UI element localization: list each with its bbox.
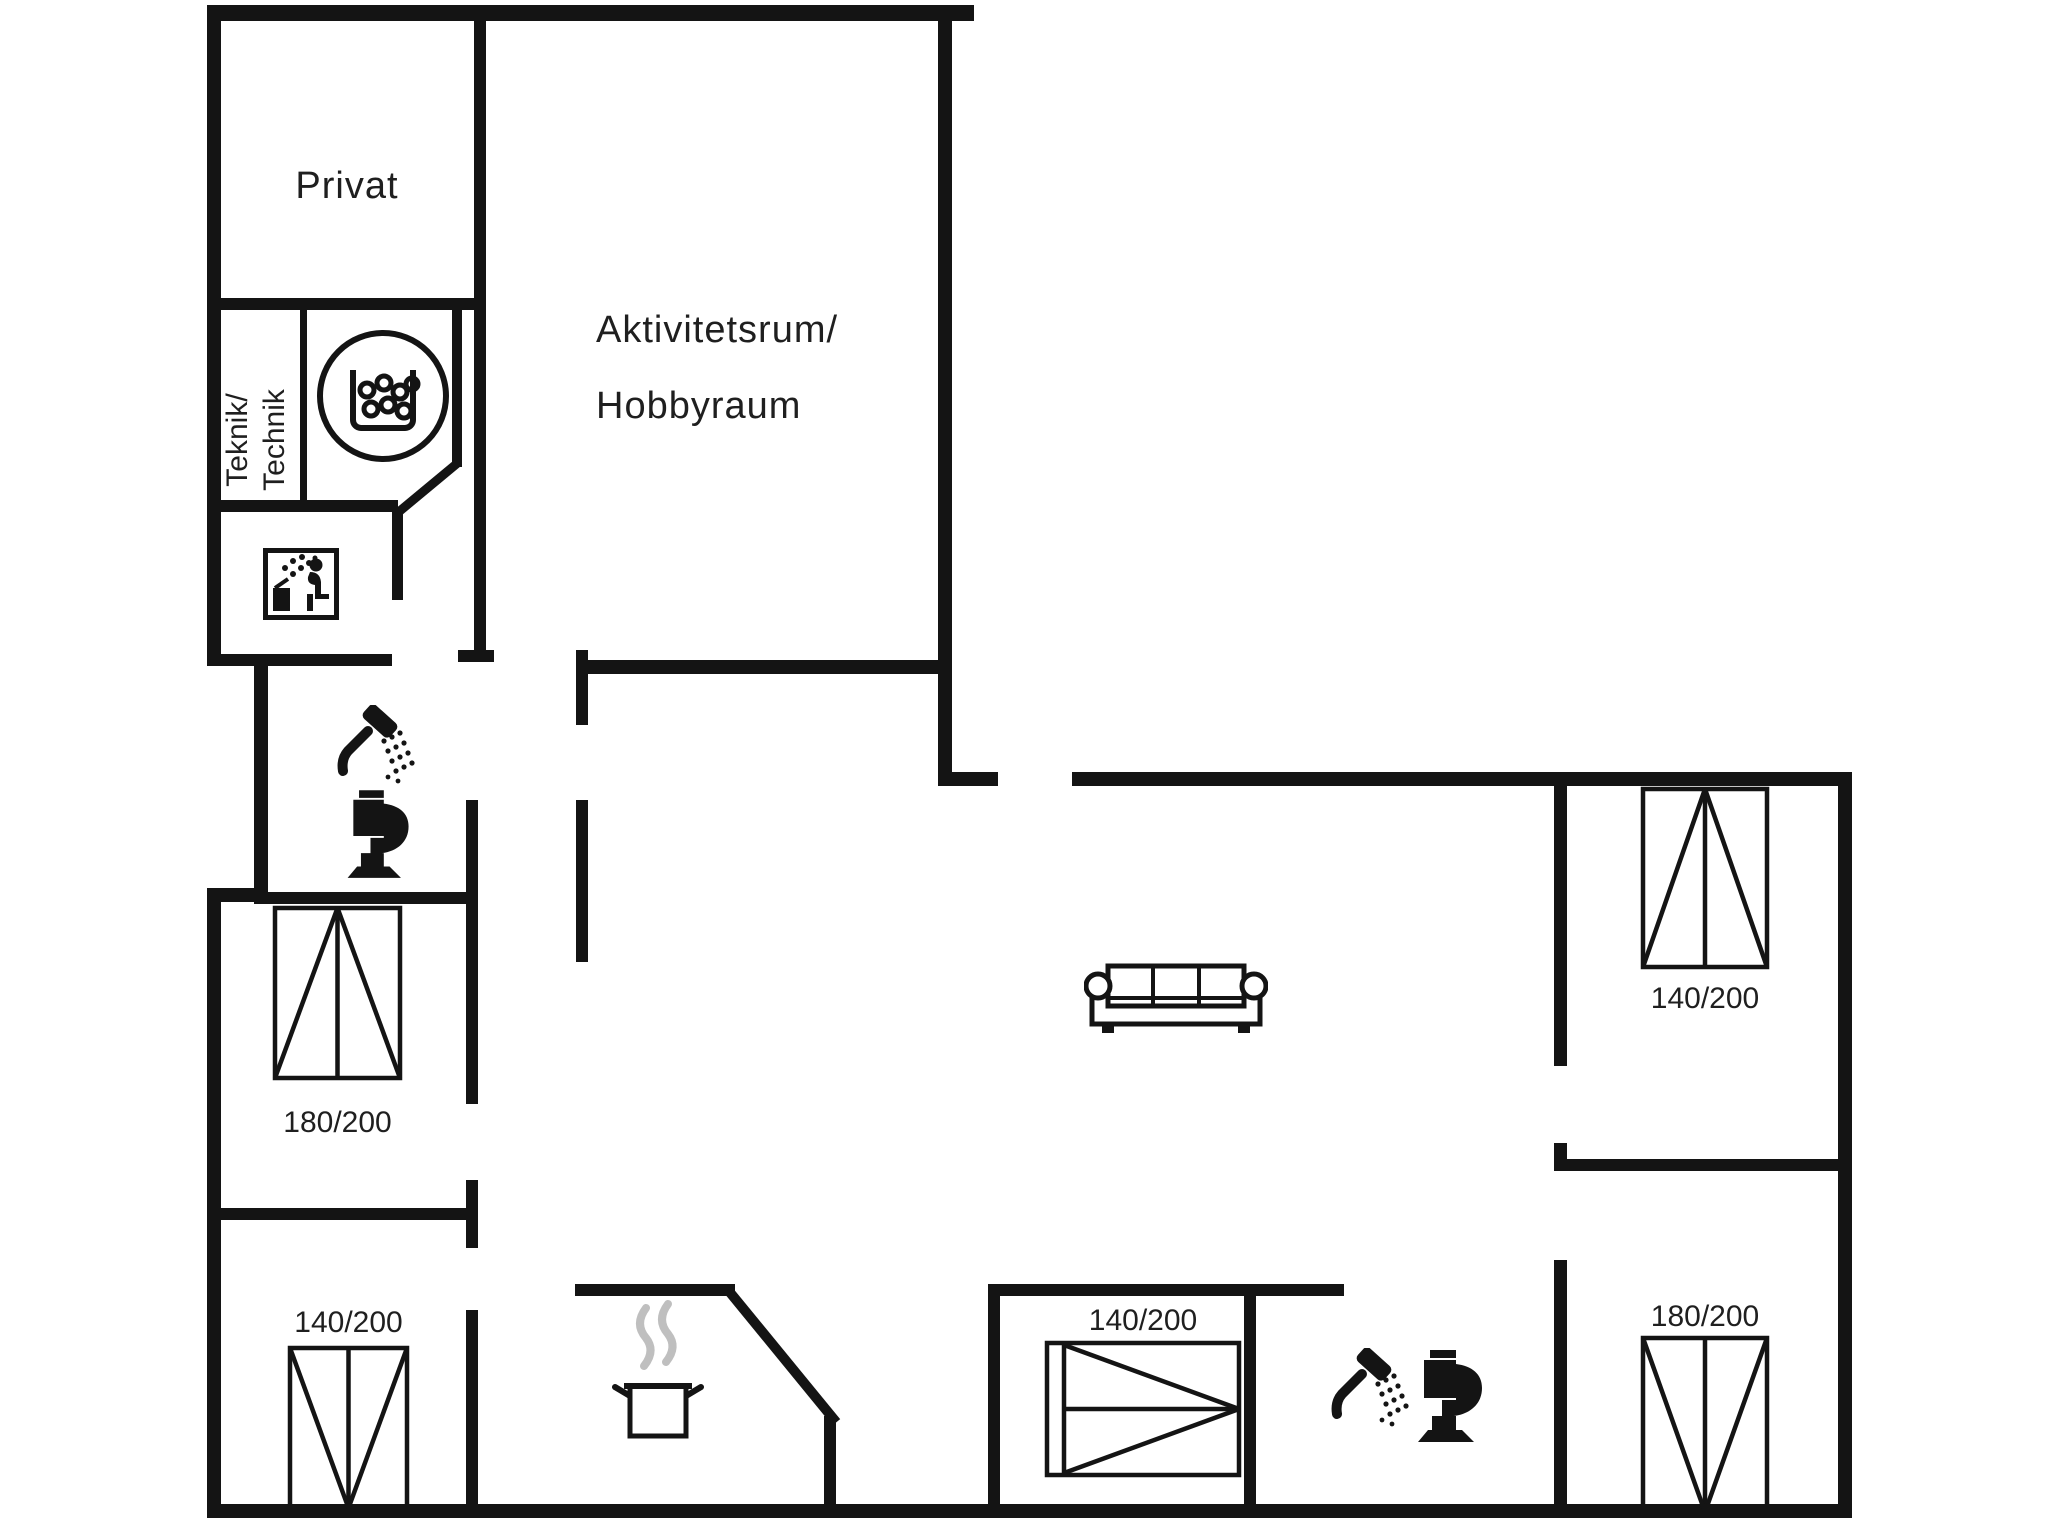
bed-size-label: 180/200 — [1640, 1300, 1770, 1334]
bed-size-label: 140/200 — [1044, 1304, 1242, 1338]
bed-icon — [272, 905, 403, 1081]
wall-kitchen-chamfer — [724, 1287, 840, 1426]
cooking-pot-icon — [610, 1298, 706, 1444]
shower-icon — [1322, 1348, 1412, 1438]
bed-icon — [287, 1345, 410, 1511]
wall-left-lower — [207, 888, 221, 1518]
wall-wash-chamfer — [395, 460, 460, 516]
wall-spine-bed2 — [466, 1310, 478, 1518]
bed-size-label: 180/200 — [272, 1106, 403, 1140]
bed-icon — [1640, 1335, 1770, 1515]
bed-icon — [1044, 1340, 1242, 1478]
wall-privat-bottom — [207, 298, 486, 310]
wall-bath2-left — [1244, 1284, 1256, 1518]
wall-sauna-bottom — [207, 654, 392, 666]
wall-rightwing-top — [1072, 772, 1852, 786]
wall-rightbed-1 — [1554, 786, 1567, 1066]
bed-icon — [1640, 786, 1770, 970]
wall-hall-jamb — [576, 650, 588, 725]
wall-wash-right — [452, 306, 462, 467]
wall-top — [207, 5, 974, 21]
wall-bedroom-divider — [214, 1208, 466, 1220]
wall-bottom — [207, 1504, 1852, 1518]
toilet-icon — [1410, 1350, 1494, 1446]
wall-kitchen-right — [824, 1416, 836, 1518]
wall-technik-bottom — [207, 500, 398, 512]
bed-size-label: 140/200 — [287, 1306, 410, 1340]
room-label-activity-line2: Hobbyraum — [596, 368, 838, 444]
wall-sauna-jamb — [392, 508, 403, 600]
wall-rightbed-3 — [1554, 1260, 1567, 1518]
wall-rightbed-divider — [1567, 1159, 1852, 1171]
wall-right-outer — [1838, 772, 1852, 1518]
wall-left-upper — [207, 5, 221, 666]
room-label-activity: Aktivitetsrum/ Hobbyraum — [596, 292, 838, 444]
room-label-activity-line1: Aktivitetsrum/ — [596, 292, 838, 368]
bed-size-label: 140/200 — [1640, 982, 1770, 1016]
room-label-technik-line2: Technik — [256, 389, 293, 491]
sauna-icon — [263, 548, 339, 620]
wall-privat-activity-divider — [474, 5, 486, 660]
room-label-technik: Teknik/ Technik — [219, 389, 293, 491]
floor-plan: Privat Aktivitetsrum/ Hobbyraum Teknik/ … — [0, 0, 2048, 1536]
washing-machine-icon — [313, 326, 453, 466]
wall-activity-right — [938, 5, 952, 786]
wall-spine-jamb — [466, 1180, 478, 1248]
wall-bath-bottom — [254, 892, 478, 904]
wall-technik-strip — [300, 310, 307, 506]
wall-activity-bottom — [586, 660, 938, 674]
wall-spine-mid — [466, 800, 478, 904]
wall-midblock-top — [988, 1284, 1344, 1296]
wall-notch-right — [254, 654, 268, 900]
wall-rightbed-2 — [1554, 1143, 1567, 1171]
wall-midblock-left — [988, 1284, 1000, 1518]
wall-kitchen-top — [575, 1284, 735, 1296]
wall-activity-right-foot — [938, 772, 998, 786]
shower-icon — [328, 705, 418, 795]
toilet-icon — [340, 790, 420, 882]
room-label-privat: Privat — [247, 165, 447, 208]
room-label-technik-line1: Teknik/ — [219, 389, 256, 491]
sofa-icon — [1084, 960, 1268, 1040]
wall-hall-right — [576, 800, 588, 962]
wall-divider-foot — [458, 650, 494, 662]
wall-spine-bed1 — [466, 904, 478, 1104]
